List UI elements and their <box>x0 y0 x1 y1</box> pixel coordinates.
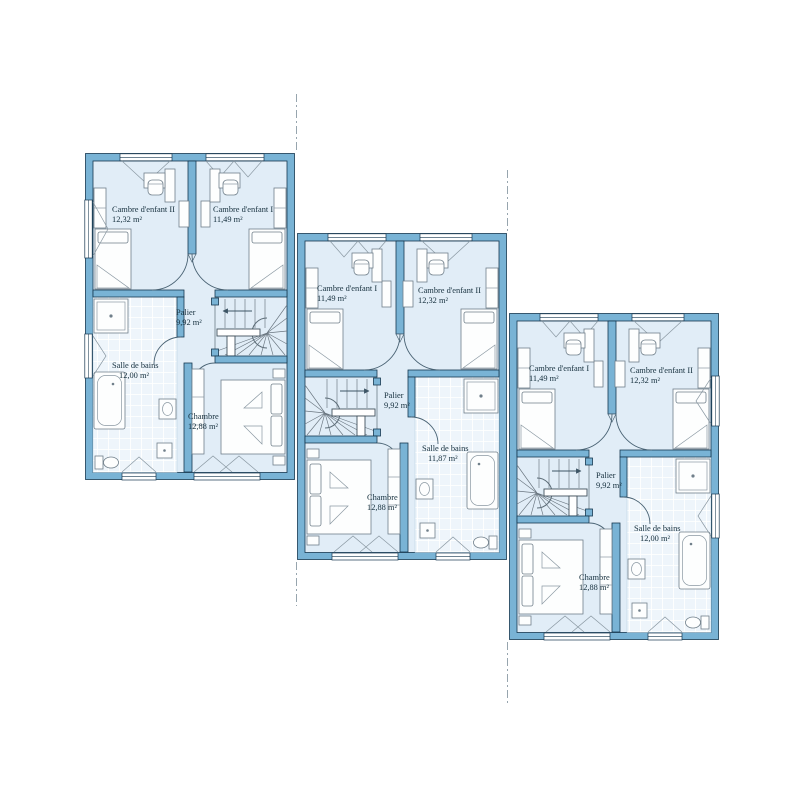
room-label-palier: Palier <box>596 471 616 480</box>
room-label-child-right: Cambre d'enfant II <box>630 366 693 375</box>
room-area-bath: 11,87 m² <box>428 454 458 463</box>
floor-plan-svg: Cambre d'enfant II 12,32 m² Cambre d'enf… <box>0 0 800 800</box>
room-label-child-right: Cambre d'enfant II <box>418 286 481 295</box>
unit-1: Cambre d'enfant II 12,32 m² Cambre d'enf… <box>85 154 295 481</box>
floor-plan-canvas: Cambre d'enfant II 12,32 m² Cambre d'enf… <box>0 0 800 800</box>
room-area-child-left: 11,49 m² <box>529 374 559 383</box>
room-area-child-right: 12,32 m² <box>418 296 448 305</box>
room-label-child-left: Cambre d'enfant I <box>529 364 589 373</box>
room-label-chambre: Chambre <box>367 493 398 502</box>
room-label-bath: Salle de bains <box>634 524 681 533</box>
room-label-chambre: Chambre <box>188 412 219 421</box>
room-area-chambre: 12,88 m² <box>367 503 397 512</box>
room-label-palier: Palier <box>384 391 404 400</box>
room-area-palier: 9,92 m² <box>384 401 410 410</box>
room-area-palier: 9,92 m² <box>596 481 622 490</box>
room-area-bath: 12,00 m² <box>640 534 670 543</box>
room-label-palier: Palier <box>176 308 196 317</box>
room-area-child-left: 12,32 m² <box>112 215 142 224</box>
room-area-child-right: 12,32 m² <box>630 376 660 385</box>
room-label-child-right: Cambre d'enfant I <box>213 205 273 214</box>
unit-3: Cambre d'enfant I 11,49 m² Cambre d'enfa… <box>510 314 720 641</box>
room-label-chambre: Chambre <box>579 573 610 582</box>
room-area-child-left: 11,49 m² <box>317 294 347 303</box>
room-label-child-left: Cambre d'enfant I <box>317 284 377 293</box>
room-area-palier: 9,92 m² <box>176 318 202 327</box>
room-area-chambre: 12,88 m² <box>188 422 218 431</box>
room-label-bath: Salle de bains <box>422 444 469 453</box>
room-area-bath: 12,00 m² <box>119 371 149 380</box>
unit-2: Cambre d'enfant I 11,49 m² Cambre d'enfa… <box>298 234 507 561</box>
room-area-chambre: 12,88 m² <box>579 583 609 592</box>
room-area-child-right: 11,49 m² <box>213 215 243 224</box>
room-label-bath: Salle de bains <box>112 361 159 370</box>
room-label-child-left: Cambre d'enfant II <box>112 205 175 214</box>
